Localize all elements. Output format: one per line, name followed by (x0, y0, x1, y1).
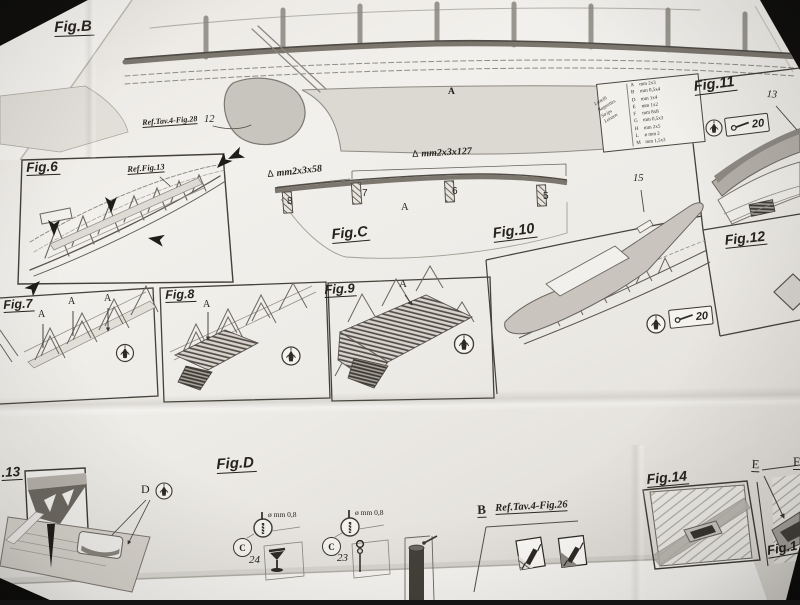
part-number-13: 13 (766, 89, 777, 101)
glue-bottle-icon (282, 347, 300, 365)
drill-size-label: ø mm 0,8 (268, 511, 297, 519)
glue-bottle-icon (455, 335, 474, 354)
glue-bottle-icon (117, 345, 134, 362)
fig8-title: Fig.8 (165, 288, 197, 303)
strip-letter-A: A (203, 300, 210, 311)
row-letter: A (630, 83, 637, 89)
paper-fold-vertical (630, 445, 646, 605)
shaded-part-blob (224, 78, 305, 144)
glue-bottle-icon (647, 315, 665, 333)
fig9-title: Fig.9 (324, 281, 357, 297)
figC-drawing (275, 164, 567, 258)
nail-icon (673, 311, 694, 324)
nail-number: 20 (751, 117, 765, 130)
paper-fold-vertical (84, 0, 97, 158)
plan-sheet: Fig.B Ref.Tav.4-Fig.28 12 A Listelli Bag… (0, 0, 800, 600)
fig6-title: Fig.6 (26, 160, 60, 176)
fig13-title-partial: .13 (1, 465, 23, 481)
figC-title: Fig.C (331, 225, 371, 244)
part-number-23: 23 (337, 553, 348, 565)
planked-deck-area (175, 330, 258, 370)
figD-title: Fig.D (216, 455, 256, 474)
strip-letter-A: A (399, 279, 407, 291)
strip-letter-F-partial: F (793, 456, 800, 470)
drill-size-label: ø mm 0,8 (355, 509, 384, 517)
glue-bottle-icon (706, 120, 722, 136)
part-number-24: 24 (249, 555, 260, 567)
triangle-marker: Δ (412, 150, 419, 160)
nail-icon (729, 119, 750, 132)
leader-line-15 (641, 190, 644, 212)
slot-number-7: 7 (362, 189, 368, 200)
slot-number-5: 5 (543, 192, 549, 203)
glue-letter: C (328, 542, 335, 552)
row-letter: B (631, 90, 638, 96)
paint-square (558, 536, 586, 568)
strip-letter-E: E (751, 458, 759, 473)
row-letter: D (632, 97, 639, 103)
row-letter: F (633, 112, 640, 118)
strip-letter-A: A (68, 297, 75, 308)
strip-letter-D: D (141, 483, 150, 496)
strip-letter-A: A (104, 294, 111, 305)
fig7-title: Fig.7 (3, 297, 35, 313)
part-number-12: 12 (204, 114, 215, 125)
row-letter: E (632, 104, 639, 110)
strip-letter-A: A (38, 310, 45, 321)
zone-letter-A-figC: A (401, 202, 409, 213)
glue-letter: C (239, 543, 246, 553)
slot-number-6: 6 (452, 187, 458, 198)
slot-number-8: 8 (287, 197, 293, 208)
photo-of-plan-sheet: { "scene": { "description": "Photograph … (0, 0, 800, 600)
triangle-marker: Δ (267, 169, 274, 180)
ref-letter-B: B (477, 503, 486, 518)
fig10-drawing (486, 190, 710, 394)
zone-letter-A: A (448, 88, 455, 98)
strip-sizes-table: Listelli Baguettes Strips Leisten Amm 2x… (596, 73, 706, 152)
glue-bottle-icon (156, 483, 172, 499)
photo-background: Fig.B Ref.Tav.4-Fig.28 12 A Listelli Bag… (0, 0, 800, 600)
nail-number: 20 (695, 309, 708, 322)
paint-square (516, 537, 545, 570)
leader-line-13 (776, 106, 797, 130)
part-number-15: 15 (633, 173, 644, 184)
